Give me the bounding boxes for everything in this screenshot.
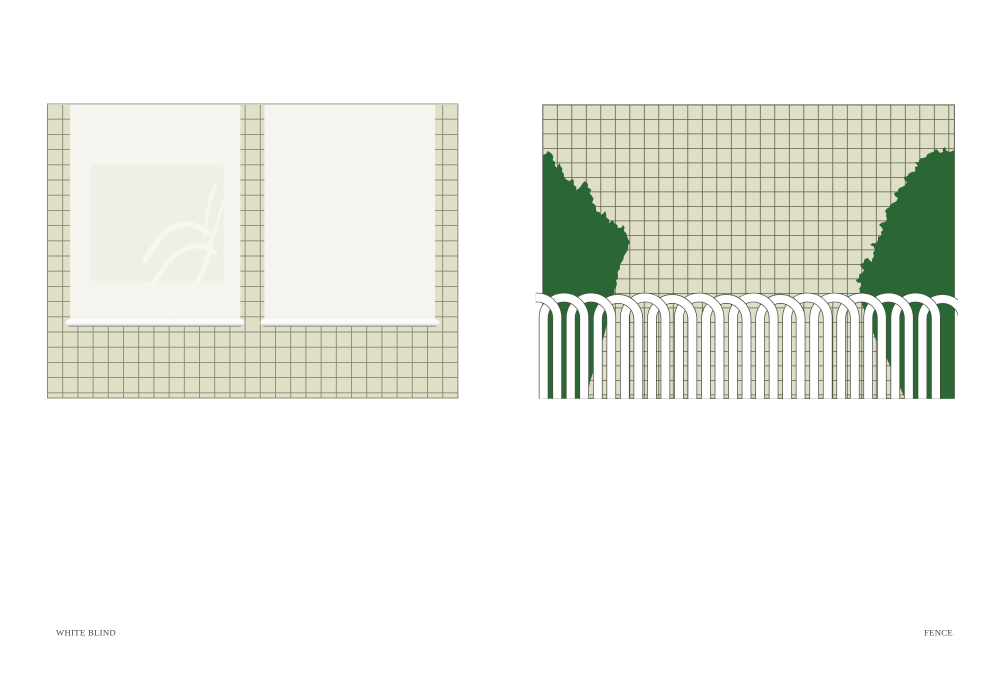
svg-text:WHITE BLIND: WHITE BLIND (56, 628, 116, 638)
svg-text:FENCE: FENCE (924, 628, 953, 638)
